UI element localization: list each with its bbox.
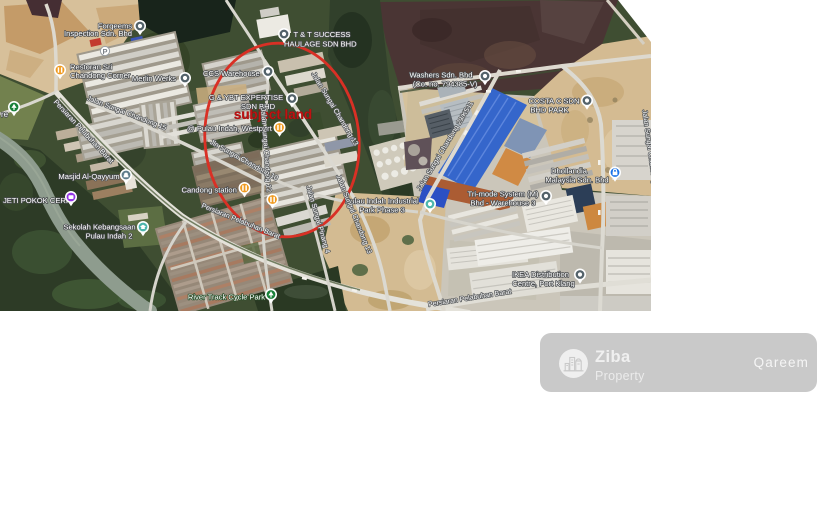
svg-text:(Co. no. 794385-V): (Co. no. 794385-V) (413, 80, 478, 89)
svg-text:Washers Sdn. Bhd: Washers Sdn. Bhd (409, 71, 472, 80)
svg-text:Candong station: Candong station (182, 186, 237, 195)
svg-text:re: re (1, 110, 9, 119)
svg-text:Centre, Port Klang: Centre, Port Klang (512, 279, 574, 288)
svg-text:Tri-mode System (M): Tri-mode System (M) (467, 190, 538, 199)
svg-text:IKEA Distribution: IKEA Distribution (512, 270, 569, 279)
svg-text:Malaysia Sdn. Bhd: Malaysia Sdn. Bhd (545, 176, 608, 185)
svg-text:P: P (102, 47, 107, 56)
svg-text:BHD PARK: BHD PARK (530, 106, 568, 115)
svg-text:HAULAGE SDN BHD: HAULAGE SDN BHD (284, 40, 357, 49)
svg-text:@ Pulau Indah, Westport: @ Pulau Indah, Westport (187, 124, 273, 133)
svg-text:COSTA C SDN: COSTA C SDN (529, 97, 580, 106)
svg-text:Inspection Sdn. Bhd: Inspection Sdn. Bhd (64, 29, 132, 38)
svg-text:CCS Warehouse: CCS Warehouse (203, 69, 260, 78)
svg-text:JETI POKOK CERI: JETI POKOK CERI (3, 196, 68, 205)
svg-text:Park Phase 3: Park Phase 3 (359, 206, 405, 215)
svg-text:G & YBT EXPERTISE: G & YBT EXPERTISE (209, 93, 283, 102)
svg-text:Bhd - Warehouse 3: Bhd - Warehouse 3 (470, 199, 535, 208)
svg-text:River Track Cycle Park: River Track Cycle Park (188, 293, 265, 302)
svg-text:T & T SUCCESS: T & T SUCCESS (294, 30, 351, 39)
svg-text:Merlin Werks: Merlin Werks (132, 74, 176, 83)
svg-text:Dhollandia: Dhollandia (551, 167, 588, 176)
svg-text:Chandong Corner: Chandong Corner (70, 71, 131, 80)
svg-text:SDN BHD: SDN BHD (241, 102, 276, 111)
svg-text:Sekolah Kebangsaan: Sekolah Kebangsaan (63, 223, 135, 232)
svg-text:Pulau Indah Industrial: Pulau Indah Industrial (345, 197, 419, 206)
svg-text:Pulau Indah 2: Pulau Indah 2 (86, 232, 133, 241)
svg-text:Masjid Al-Qayyum: Masjid Al-Qayyum (58, 172, 119, 181)
